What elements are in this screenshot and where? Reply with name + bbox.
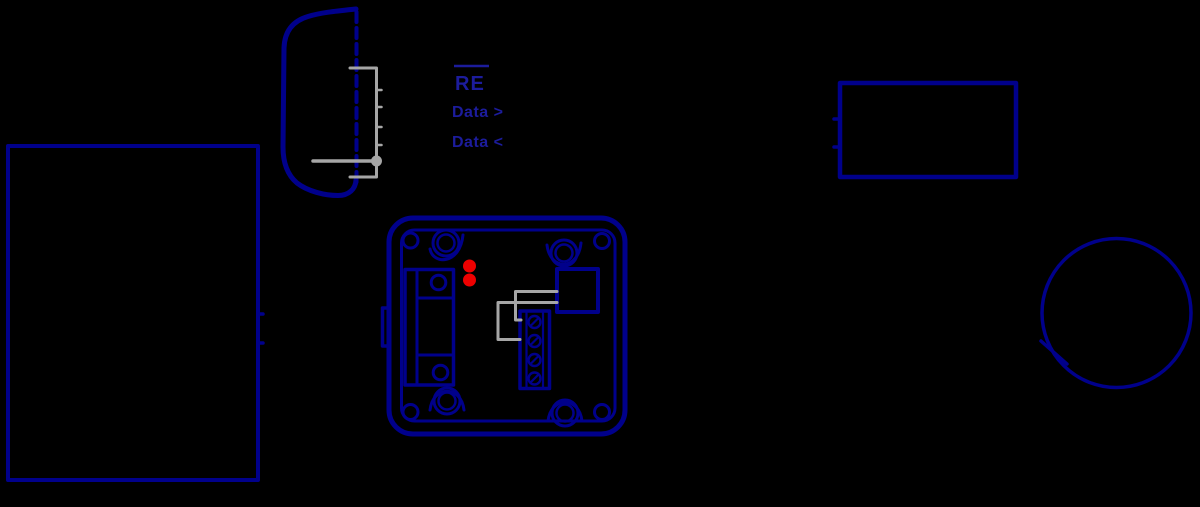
signal-labels: RE Data > Data < bbox=[452, 73, 503, 151]
re-label: RE bbox=[455, 73, 485, 95]
corner-hole bbox=[403, 405, 418, 420]
pin-tap-dot bbox=[371, 156, 382, 167]
converter-box bbox=[383, 218, 626, 434]
corner-hole bbox=[403, 233, 418, 248]
left-device-rectangle bbox=[8, 146, 258, 480]
sensor-connection-tick bbox=[1041, 341, 1067, 364]
terminal-screw-slot bbox=[531, 375, 539, 383]
data-out-label: Data > bbox=[452, 104, 503, 121]
corner-hole bbox=[595, 234, 610, 249]
screw-boss-screw bbox=[557, 405, 574, 422]
relay-screw-hole bbox=[431, 275, 446, 290]
led-indicator bbox=[463, 274, 476, 287]
terminal-screw-slot bbox=[531, 318, 539, 326]
relay-block-dividers bbox=[417, 298, 454, 355]
screw-boss-screw bbox=[438, 235, 455, 252]
relay-screw-hole bbox=[433, 365, 448, 380]
converter-outer-shell bbox=[389, 218, 625, 434]
wiring-diagram: RE Data > Data < bbox=[0, 0, 1200, 507]
led-pair bbox=[463, 260, 476, 287]
terminal-screw-slot bbox=[531, 337, 539, 345]
terminal-screw-slot bbox=[531, 356, 539, 364]
navy-linework bbox=[8, 9, 1191, 480]
component-square bbox=[557, 269, 598, 312]
screw-boss-screw bbox=[439, 393, 456, 410]
led-indicator bbox=[463, 260, 476, 273]
corner-hole bbox=[595, 405, 610, 420]
sensor-circle bbox=[1042, 239, 1191, 388]
screw-boss-screw bbox=[556, 245, 573, 262]
converter-side-tab bbox=[383, 308, 390, 346]
power-rectangle bbox=[840, 83, 1016, 177]
db9-connector-shell bbox=[283, 9, 356, 196]
data-in-label: Data < bbox=[452, 134, 503, 151]
diagram-canvas: RE Data > Data < bbox=[0, 0, 1200, 507]
converter-inner-shell bbox=[402, 230, 616, 421]
